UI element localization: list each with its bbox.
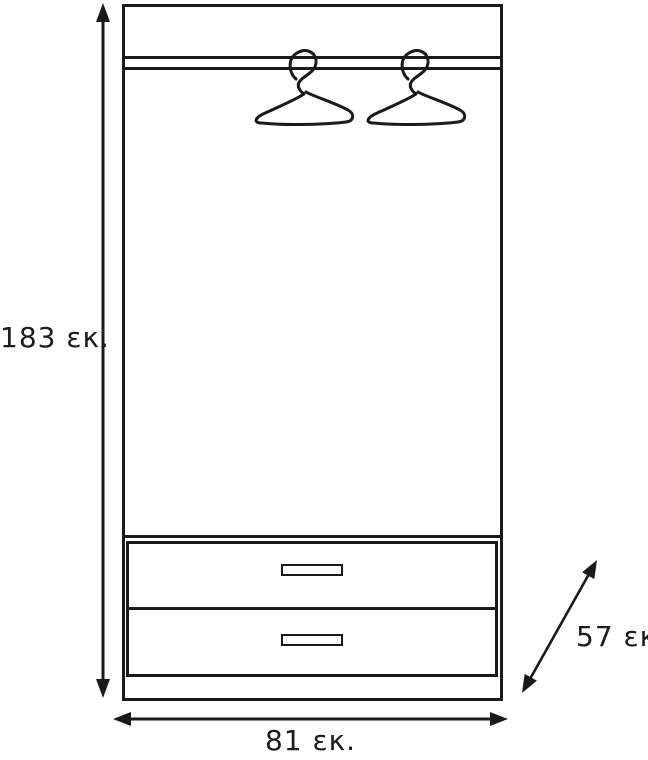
width-dimension-label: 81 εκ. bbox=[113, 726, 508, 756]
hanging-rail-top-line bbox=[125, 56, 500, 59]
wardrobe-dimension-diagram: 183 εκ. 81 εκ. 57 εκ. bbox=[0, 0, 648, 760]
drawer-section bbox=[126, 541, 498, 677]
drawer-1-handle bbox=[281, 564, 343, 576]
height-dimension-label: 183 εκ. bbox=[0, 323, 98, 353]
upper-compartment-bottom-line bbox=[125, 535, 500, 538]
depth-dimension-label: 57 εκ. bbox=[576, 622, 648, 652]
hanging-rail-bottom-line bbox=[125, 67, 500, 70]
drawer-2-handle bbox=[281, 634, 343, 646]
drawer-divider-line bbox=[129, 607, 495, 610]
